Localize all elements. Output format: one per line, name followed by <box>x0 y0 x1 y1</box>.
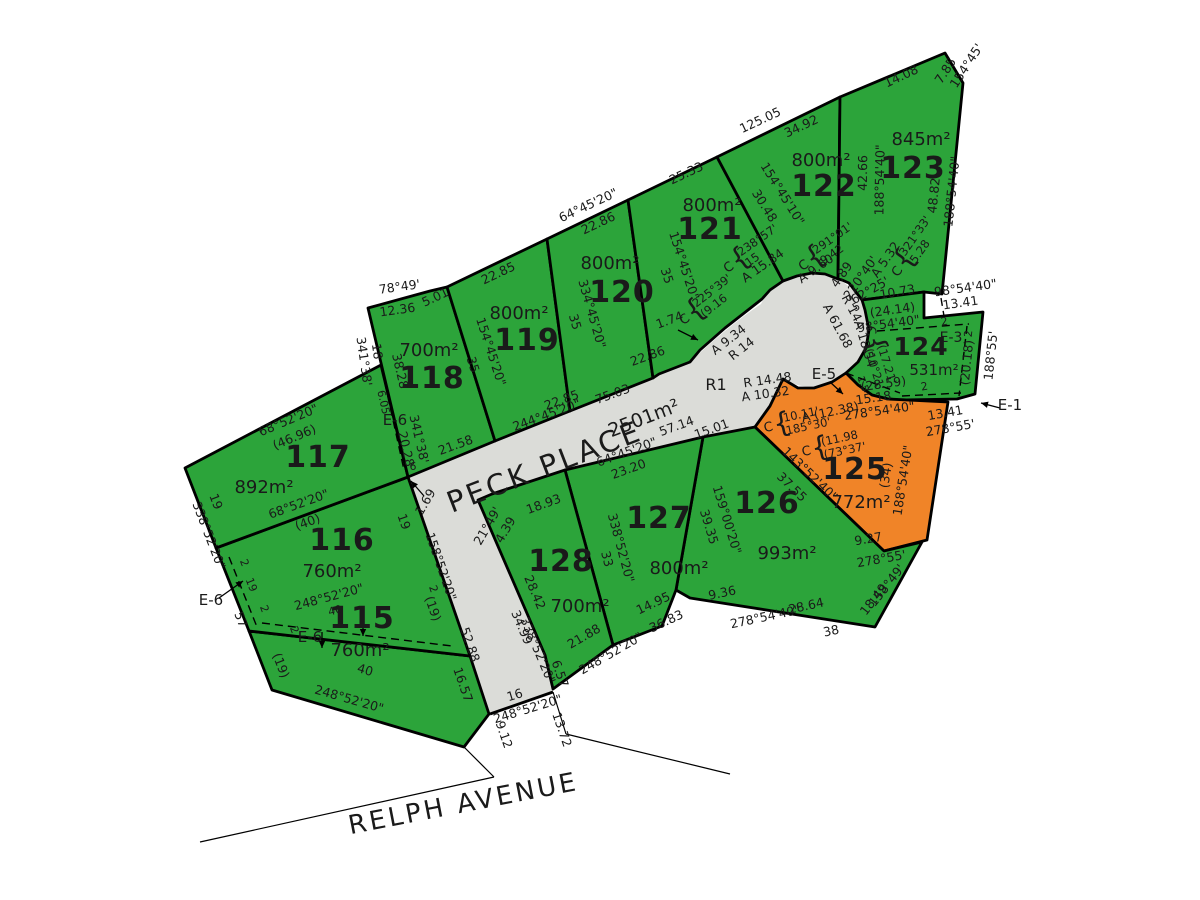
lot-120-number: 120 <box>589 275 655 310</box>
lot-128-area: 700m² <box>550 596 609 617</box>
street-name-relph-avenue: RELPH AVENUE <box>346 767 581 841</box>
peck-place-subdivision-plan: 115760m²116760m²117892m²118700m²119800m²… <box>0 0 1200 900</box>
lot-122-area: 800m² <box>791 150 850 171</box>
lot-124-area: 531m² <box>909 361 958 379</box>
dimension-label: 13.72 <box>549 710 575 749</box>
dimension-label: E-6 <box>199 591 223 609</box>
dimension-label: 78°49' <box>378 276 421 297</box>
lot-121-area: 800m² <box>682 195 741 216</box>
dimension-label: E-1 <box>998 396 1022 414</box>
arrow-e1-head <box>981 402 989 408</box>
subdivision-plan-canvas: 115760m²116760m²117892m²118700m²119800m²… <box>0 0 1200 900</box>
lot-115-area: 760m² <box>330 640 389 661</box>
dimension-label: E-6 <box>383 411 407 429</box>
lot-127-number: 127 <box>626 501 692 536</box>
dimension-label: 42.66 <box>855 155 871 191</box>
lot-128-number: 128 <box>528 544 594 579</box>
lot-116-area: 760m² <box>302 561 361 582</box>
lot-118-area: 700m² <box>399 340 458 361</box>
lot-119-area: 800m² <box>489 303 548 324</box>
lot-122-number: 122 <box>791 169 857 204</box>
lot-125-area: 772m² <box>831 492 890 513</box>
dimension-label: E-5 <box>812 365 836 383</box>
dimension-label: 38 <box>822 622 841 640</box>
dimension-label: 2 <box>962 329 976 337</box>
lot-127-area: 800m² <box>649 558 708 579</box>
lot-126-area: 993m² <box>757 543 816 564</box>
dimension-label: E-3 <box>940 330 963 346</box>
dimension-label: 188°55' <box>980 330 1000 381</box>
relph-avenue-edge-left <box>464 747 494 777</box>
lot-117-number: 117 <box>285 440 351 475</box>
road-r1-label: R1 <box>705 375 726 394</box>
lot-120-area: 800m² <box>580 253 639 274</box>
lot-116-number: 116 <box>309 523 375 558</box>
dimension-label: 6 <box>410 460 417 473</box>
lot-119-number: 119 <box>494 323 560 358</box>
lot-117-area: 892m² <box>234 477 293 498</box>
dimension-label: 188°54'40" <box>871 144 887 215</box>
lot-123-area: 845m² <box>891 129 950 150</box>
relph-avenue-edge-right <box>566 734 730 774</box>
